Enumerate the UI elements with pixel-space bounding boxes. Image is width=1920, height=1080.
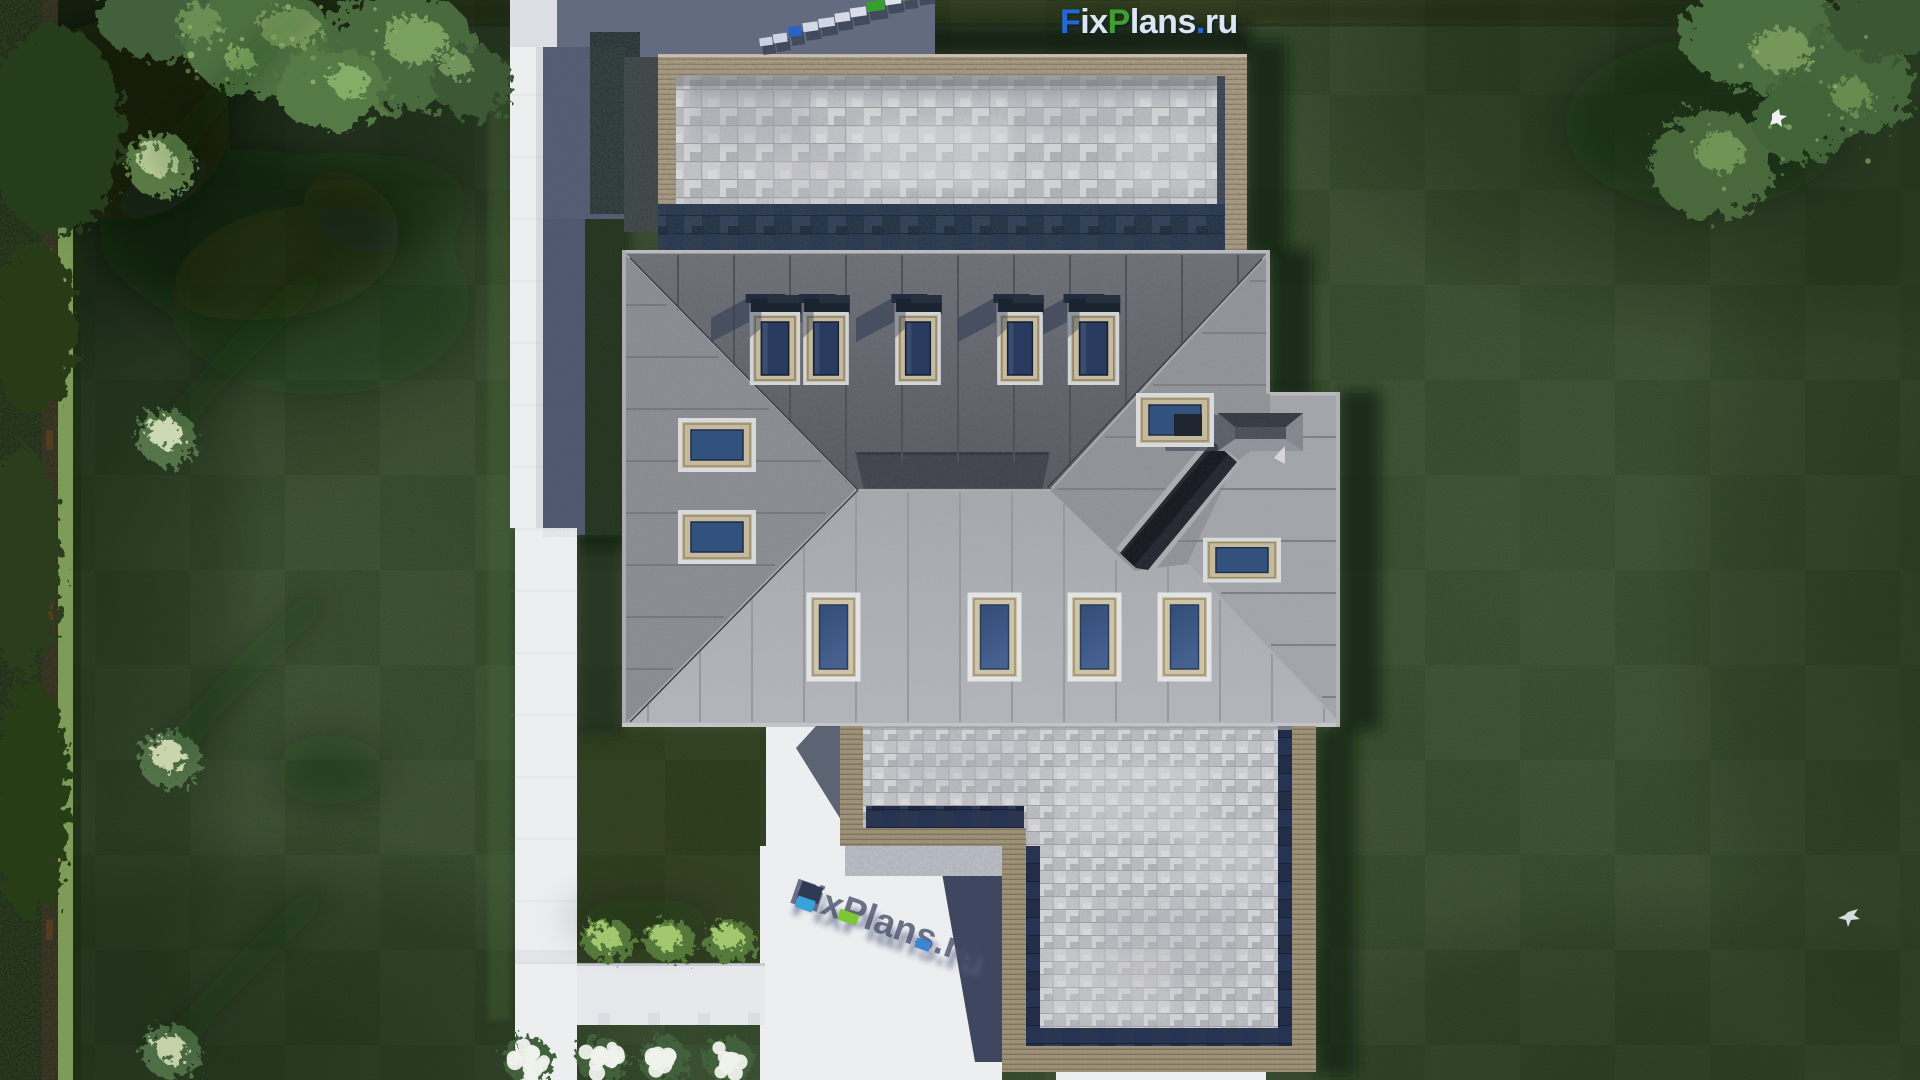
svg-text:FixPlans.ru: FixPlans.ru	[1060, 3, 1238, 41]
